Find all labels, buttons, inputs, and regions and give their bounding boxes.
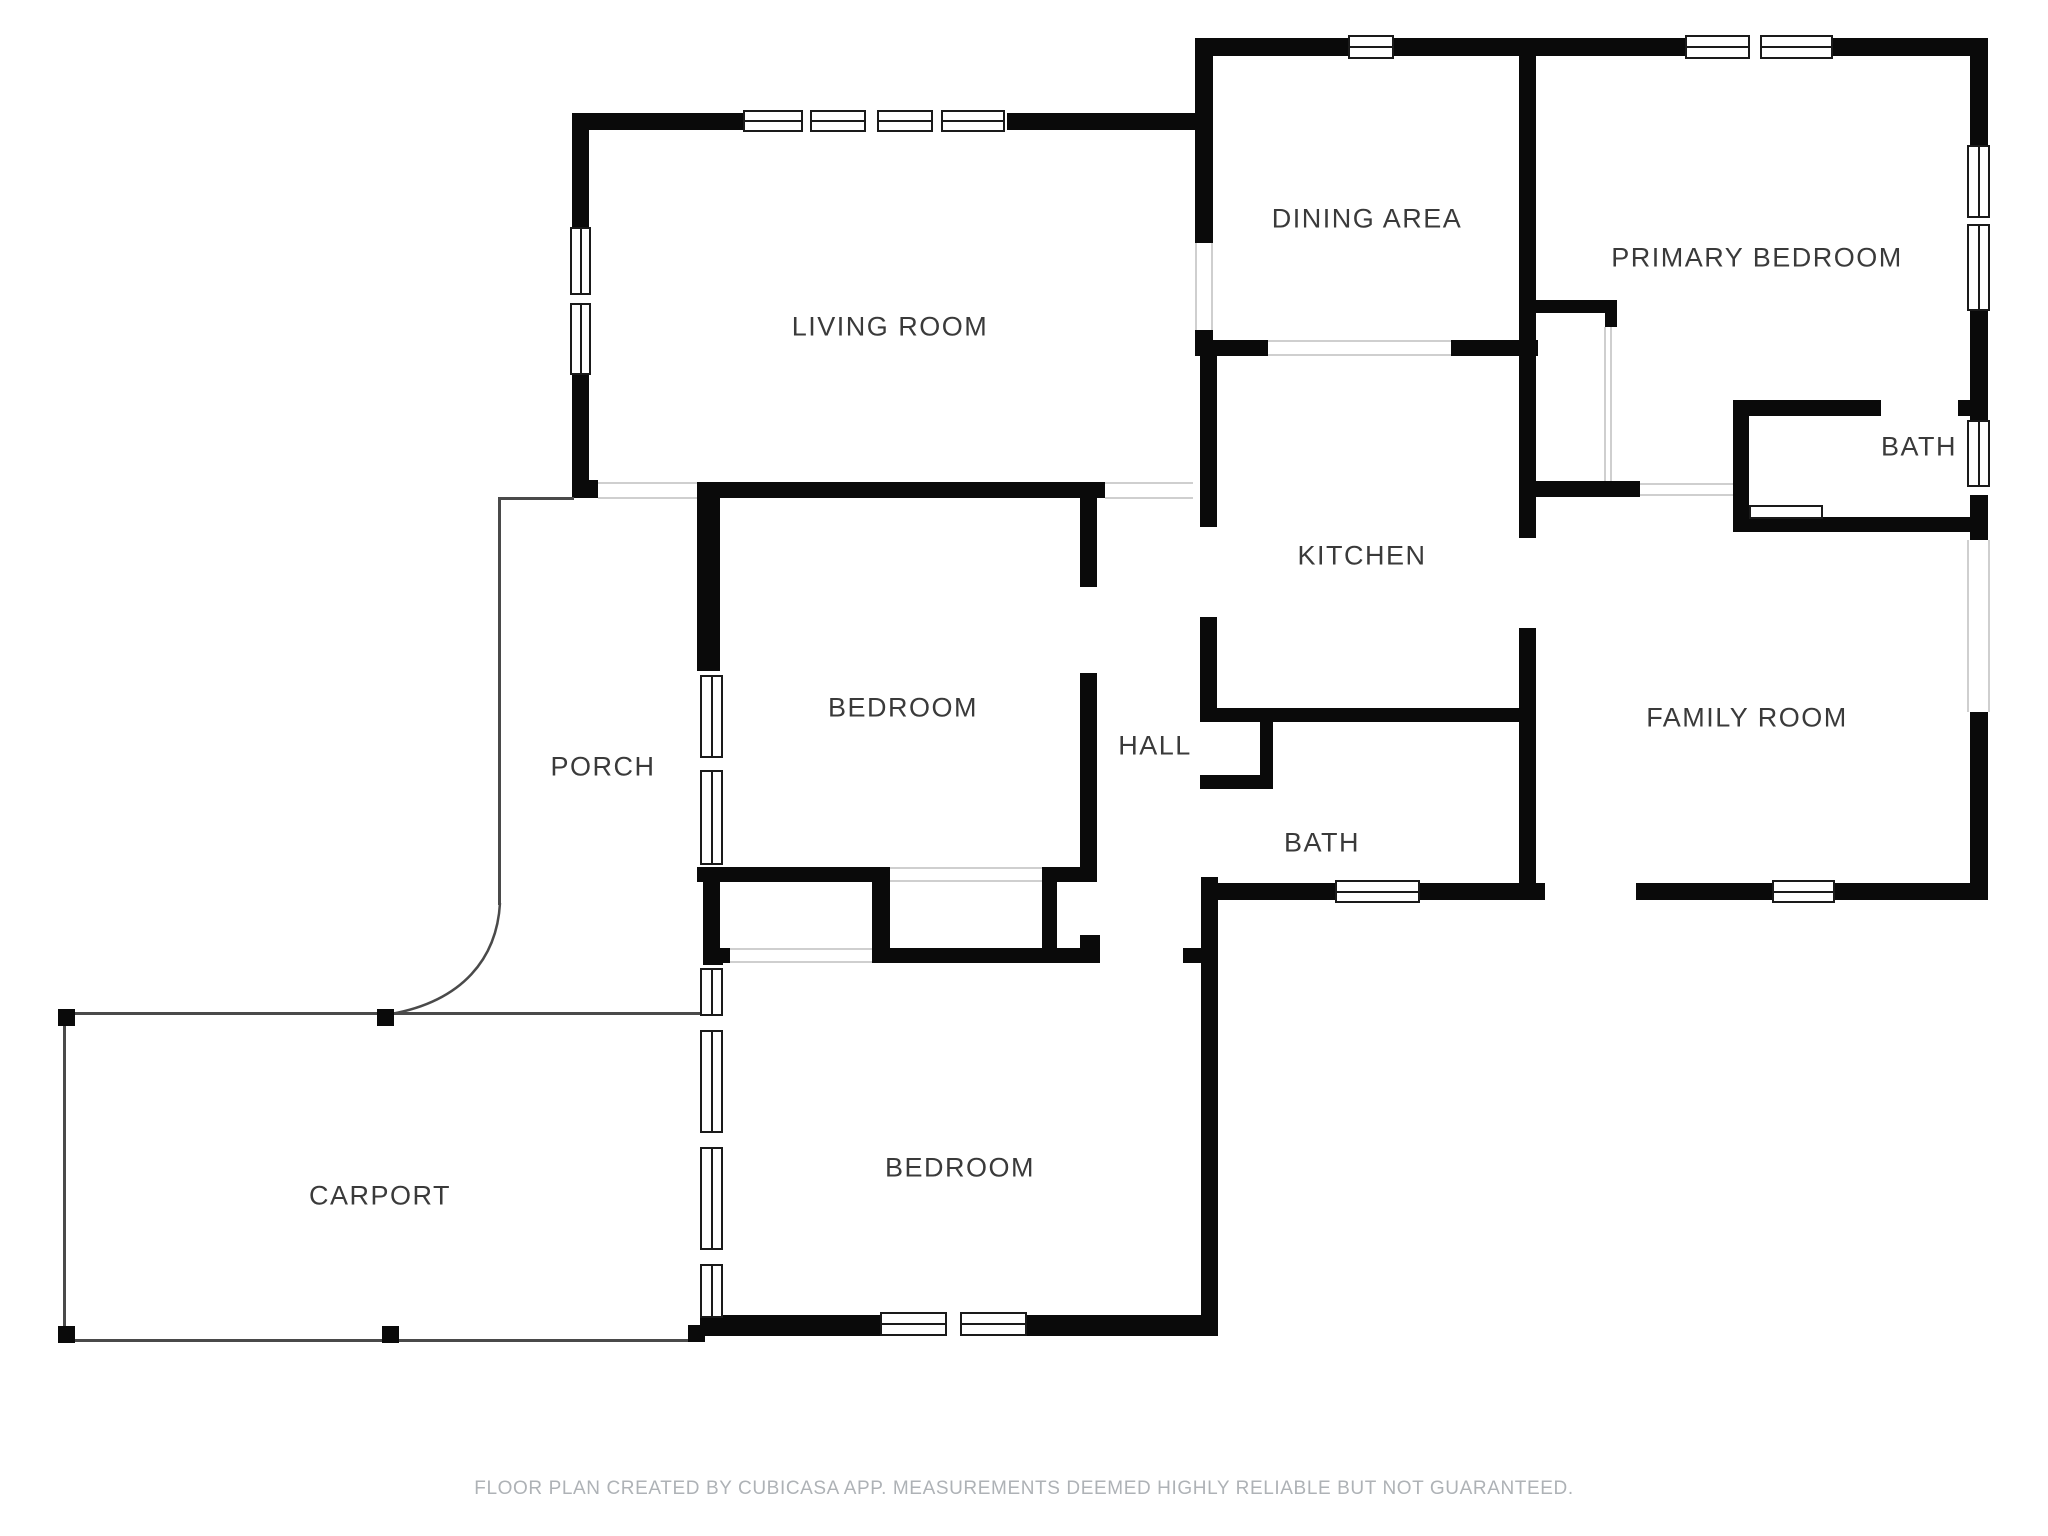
- room-label-bedroom-bottom: BEDROOM: [885, 1153, 1035, 1184]
- wall-segment: [572, 113, 589, 227]
- window-mullion: [711, 970, 713, 1014]
- wall-segment: [1027, 1315, 1218, 1336]
- wall-segment: [1636, 883, 1772, 900]
- window-icon: [1967, 145, 1990, 218]
- window-icon: [941, 110, 1005, 132]
- exterior-outline: [63, 1012, 66, 1342]
- wall-segment: [1200, 617, 1217, 722]
- window-icon: [700, 968, 723, 1016]
- window-mullion: [1687, 46, 1748, 48]
- wall-segment: [1519, 628, 1536, 900]
- wall-segment: [1200, 775, 1273, 789]
- wall-segment: [1042, 882, 1057, 948]
- room-label-porch: PORCH: [550, 752, 655, 783]
- room-label-primary-bedroom: PRIMARY BEDROOM: [1611, 243, 1903, 274]
- room-label-kitchen: KITCHEN: [1297, 541, 1426, 572]
- wall-segment: [703, 882, 720, 948]
- window-mullion: [812, 120, 864, 122]
- wall-segment: [697, 482, 720, 671]
- wall-segment: [1201, 877, 1218, 1336]
- window-mullion: [943, 120, 1003, 122]
- window-mullion: [1350, 46, 1392, 48]
- room-label-bath-upper: BATH: [1881, 432, 1957, 463]
- window-icon: [743, 110, 803, 132]
- wall-segment: [1970, 712, 1988, 900]
- window-mullion: [1978, 422, 1980, 485]
- floor-plan-canvas: FLOOR PLAN CREATED BY CUBICASA APP. MEAS…: [0, 0, 2048, 1536]
- carport-post: [688, 1325, 705, 1342]
- wall-segment: [697, 867, 890, 882]
- door-opening: [1967, 540, 1990, 712]
- window-icon: [960, 1312, 1027, 1336]
- wall-segment: [1200, 708, 1536, 722]
- wall-segment: [1970, 38, 1988, 145]
- window-icon: [1760, 35, 1833, 59]
- porch-curve-line: [391, 903, 500, 1014]
- wall-segment: [1195, 38, 1213, 243]
- wall-segment: [1605, 313, 1617, 327]
- door-opening: [1604, 327, 1612, 481]
- wall-segment: [1200, 342, 1217, 527]
- wall-segment: [1080, 493, 1097, 587]
- window-icon: [570, 227, 591, 295]
- wall-segment: [872, 948, 1100, 963]
- wall-segment: [572, 375, 589, 480]
- window-mullion: [1978, 226, 1980, 309]
- door-opening: [1195, 243, 1213, 330]
- wall-segment: [1519, 38, 1536, 538]
- window-mullion: [882, 1323, 945, 1325]
- window-icon: [1335, 880, 1420, 903]
- window-mullion: [580, 305, 582, 373]
- wall-segment: [1519, 883, 1545, 900]
- door-opening: [1268, 340, 1451, 356]
- window-mullion: [711, 1266, 713, 1316]
- window-mullion: [745, 120, 801, 122]
- window-mullion: [711, 1149, 713, 1248]
- window-icon: [877, 110, 933, 132]
- carport-post: [382, 1326, 399, 1343]
- wall-segment: [1733, 517, 1970, 532]
- window-icon: [1772, 880, 1835, 903]
- room-label-hall: HALL: [1118, 731, 1192, 762]
- wall-segment: [872, 882, 890, 948]
- window-mullion: [1774, 891, 1833, 893]
- wall-segment: [572, 480, 598, 498]
- wall-segment: [1202, 883, 1335, 900]
- wall-segment: [1970, 311, 1988, 420]
- wall-segment: [1042, 867, 1097, 882]
- room-label-dining-area: DINING AREA: [1272, 204, 1463, 235]
- window-mullion: [711, 772, 713, 863]
- room-label-bath-center: BATH: [1284, 828, 1360, 859]
- room-label-family-room: FAMILY ROOM: [1646, 703, 1848, 734]
- wall-segment: [1958, 400, 1970, 416]
- window-mullion: [1978, 147, 1980, 216]
- window-mullion: [711, 677, 713, 756]
- exterior-outline: [498, 497, 501, 905]
- vanity-fixture: [1749, 505, 1823, 519]
- window-mullion: [711, 1032, 713, 1131]
- door-opening: [1105, 482, 1193, 499]
- door-opening: [1640, 483, 1733, 496]
- door-opening: [730, 948, 872, 963]
- window-mullion: [1337, 891, 1418, 893]
- wall-segment: [1733, 400, 1749, 530]
- wall-segment: [697, 482, 1105, 498]
- wall-segment: [1536, 300, 1617, 313]
- wall-segment: [703, 1315, 880, 1336]
- window-icon: [700, 1147, 723, 1250]
- door-opening: [890, 867, 1042, 882]
- window-icon: [880, 1312, 947, 1336]
- window-icon: [700, 770, 723, 865]
- wall-segment: [1970, 492, 1988, 540]
- window-icon: [700, 1030, 723, 1133]
- footer-disclaimer: FLOOR PLAN CREATED BY CUBICASA APP. MEAS…: [474, 1478, 1574, 1500]
- window-icon: [570, 303, 591, 375]
- window-icon: [1348, 35, 1394, 59]
- room-label-bedroom-middle: BEDROOM: [828, 693, 978, 724]
- wall-segment: [1733, 400, 1881, 416]
- door-opening: [598, 482, 697, 499]
- wall-segment: [1080, 673, 1097, 867]
- wall-segment: [1519, 481, 1640, 497]
- window-icon: [700, 1264, 723, 1318]
- room-label-carport: CARPORT: [309, 1181, 451, 1212]
- window-mullion: [879, 120, 931, 122]
- carport-post: [377, 1009, 394, 1026]
- exterior-outline: [499, 497, 574, 500]
- wall-segment: [1835, 883, 1988, 900]
- window-mullion: [962, 1323, 1025, 1325]
- window-icon: [700, 675, 723, 758]
- window-icon: [1685, 35, 1750, 59]
- window-icon: [810, 110, 866, 132]
- porch-curve-layer: [0, 0, 2048, 1536]
- carport-post: [58, 1009, 75, 1026]
- window-mullion: [580, 229, 582, 293]
- window-icon: [1967, 224, 1990, 311]
- carport-post: [58, 1326, 75, 1343]
- room-label-living-room: LIVING ROOM: [792, 312, 989, 343]
- window-icon: [1967, 420, 1990, 487]
- window-mullion: [1762, 46, 1831, 48]
